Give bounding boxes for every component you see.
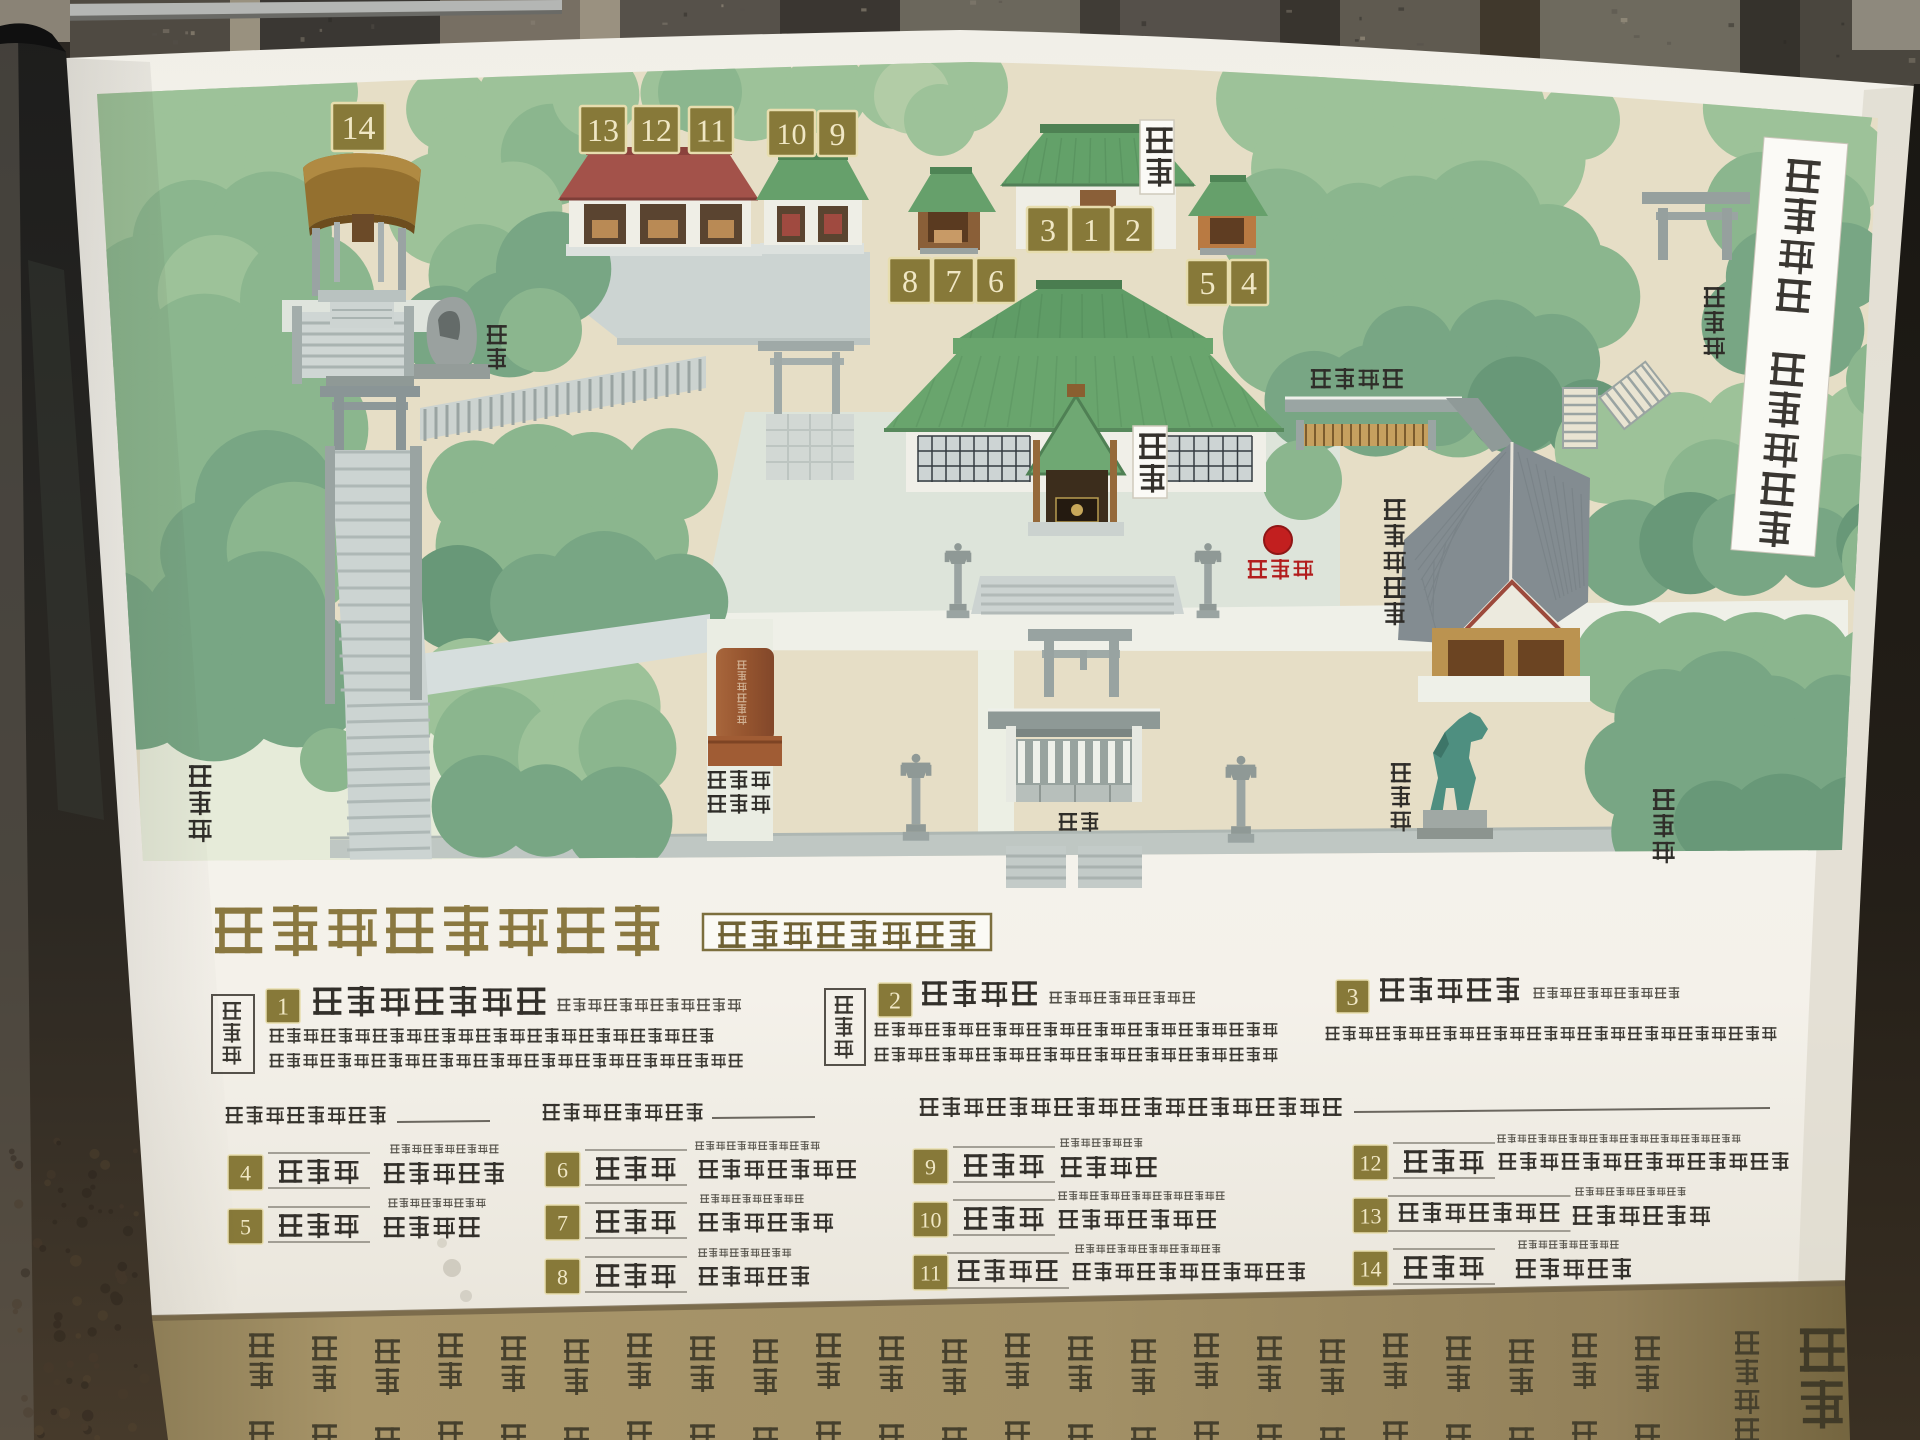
svg-text:14: 14 xyxy=(1360,1256,1382,1281)
svg-text:9: 9 xyxy=(925,1154,936,1179)
svg-text:6: 6 xyxy=(988,263,1004,299)
svg-text:4: 4 xyxy=(240,1160,251,1185)
svg-text:12: 12 xyxy=(1360,1150,1382,1175)
svg-text:5: 5 xyxy=(1200,265,1216,301)
svg-text:1: 1 xyxy=(1083,212,1099,248)
svg-text:2: 2 xyxy=(889,989,901,1015)
svg-text:14: 14 xyxy=(342,110,376,147)
svg-text:7: 7 xyxy=(557,1210,568,1235)
svg-text:3: 3 xyxy=(1347,985,1359,1011)
svg-text:6: 6 xyxy=(557,1157,568,1182)
svg-text:11: 11 xyxy=(696,113,727,149)
svg-text:8: 8 xyxy=(902,263,918,299)
svg-text:12: 12 xyxy=(640,112,672,148)
svg-text:10: 10 xyxy=(777,118,807,151)
svg-text:1: 1 xyxy=(277,995,289,1021)
svg-text:10: 10 xyxy=(920,1207,942,1232)
svg-text:11: 11 xyxy=(920,1260,941,1285)
svg-text:13: 13 xyxy=(587,112,619,148)
svg-text:8: 8 xyxy=(557,1264,568,1289)
svg-text:3: 3 xyxy=(1040,212,1056,248)
svg-text:2: 2 xyxy=(1125,212,1141,248)
svg-text:13: 13 xyxy=(1360,1203,1382,1228)
svg-text:9: 9 xyxy=(830,116,846,152)
svg-text:5: 5 xyxy=(240,1214,251,1239)
svg-text:7: 7 xyxy=(946,263,962,299)
svg-text:4: 4 xyxy=(1241,265,1257,301)
